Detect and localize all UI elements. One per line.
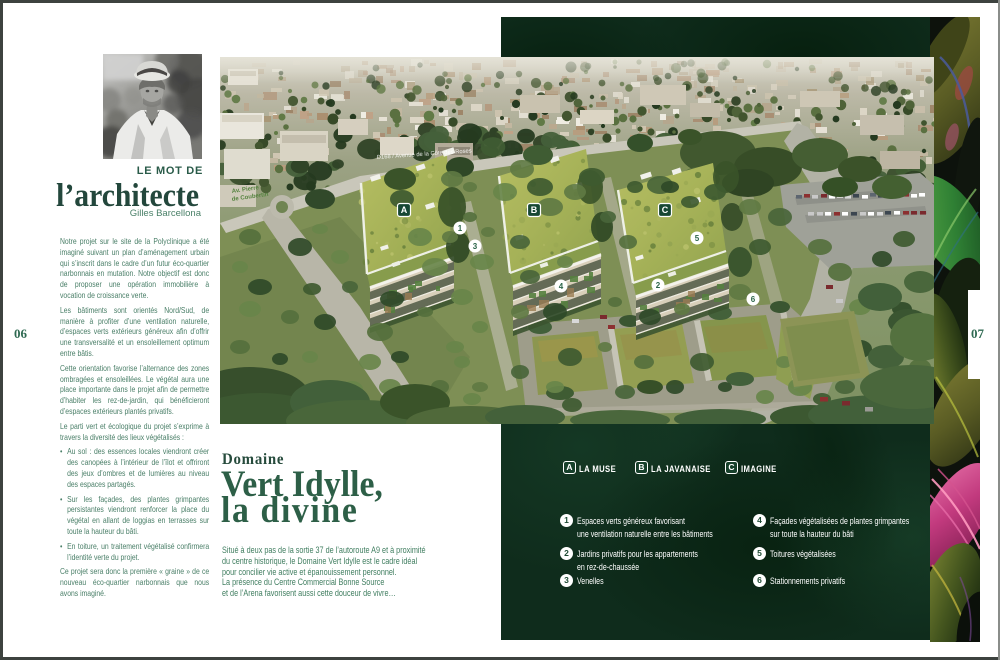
- svg-text:B: B: [531, 205, 538, 215]
- svg-text:4: 4: [559, 282, 564, 291]
- svg-text:C: C: [662, 205, 669, 215]
- svg-text:A: A: [401, 205, 408, 215]
- svg-text:1: 1: [458, 224, 463, 233]
- svg-text:6: 6: [751, 295, 756, 304]
- svg-text:5: 5: [695, 234, 700, 243]
- svg-text:3: 3: [473, 242, 478, 251]
- svg-text:2: 2: [656, 281, 661, 290]
